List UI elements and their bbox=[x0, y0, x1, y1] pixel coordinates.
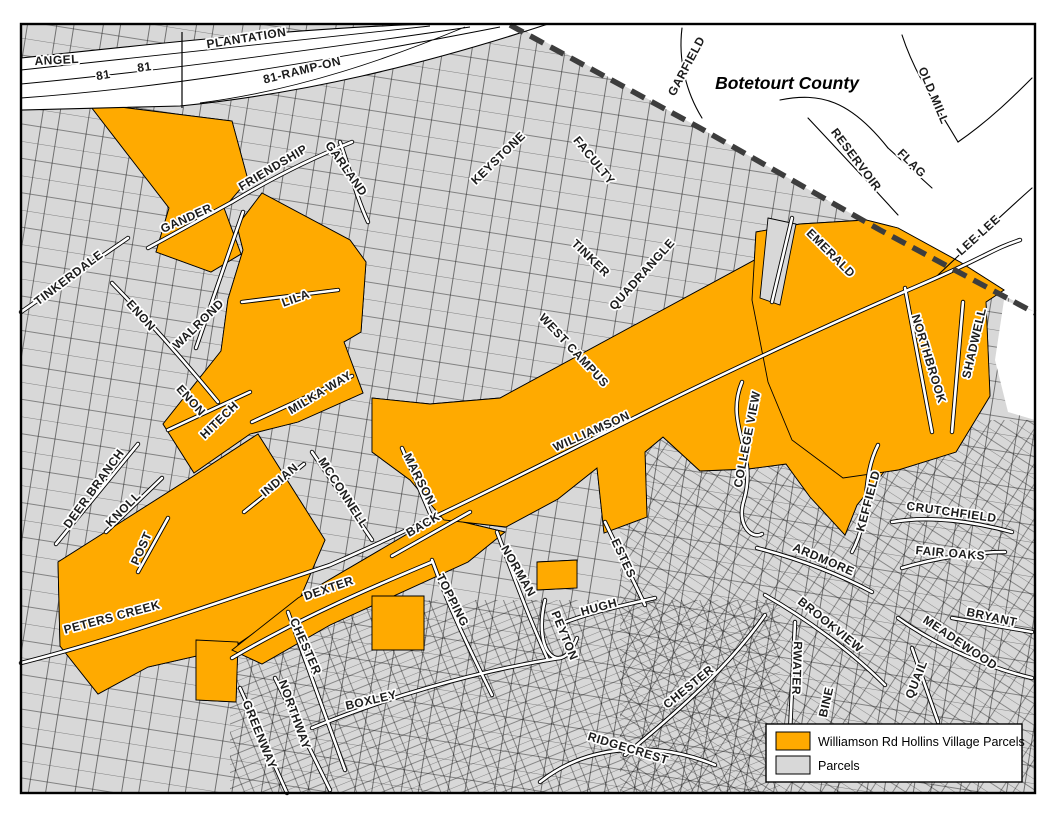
legend-swatch-highlight bbox=[776, 732, 810, 750]
street-label: 81 bbox=[136, 59, 152, 75]
legend: Williamson Rd Hollins Village Parcels Pa… bbox=[766, 724, 1025, 782]
map-canvas: ANGEL8181PLANTATION81-RAMP-ONGANDERFRIEN… bbox=[0, 0, 1056, 816]
street-label: 81 bbox=[95, 67, 112, 83]
street-label: ANGEL bbox=[34, 52, 79, 68]
legend-swatch-parcels bbox=[776, 756, 810, 774]
county-label: Botetourt County bbox=[715, 73, 860, 93]
legend-label-parcels: Parcels bbox=[818, 759, 860, 773]
legend-item-parcels: Parcels bbox=[776, 756, 860, 774]
legend-label-highlight: Williamson Rd Hollins Village Parcels bbox=[818, 735, 1025, 749]
map-export-page: ANGEL8181PLANTATION81-RAMP-ONGANDERFRIEN… bbox=[0, 0, 1056, 816]
street-label: RWATER bbox=[789, 641, 805, 695]
